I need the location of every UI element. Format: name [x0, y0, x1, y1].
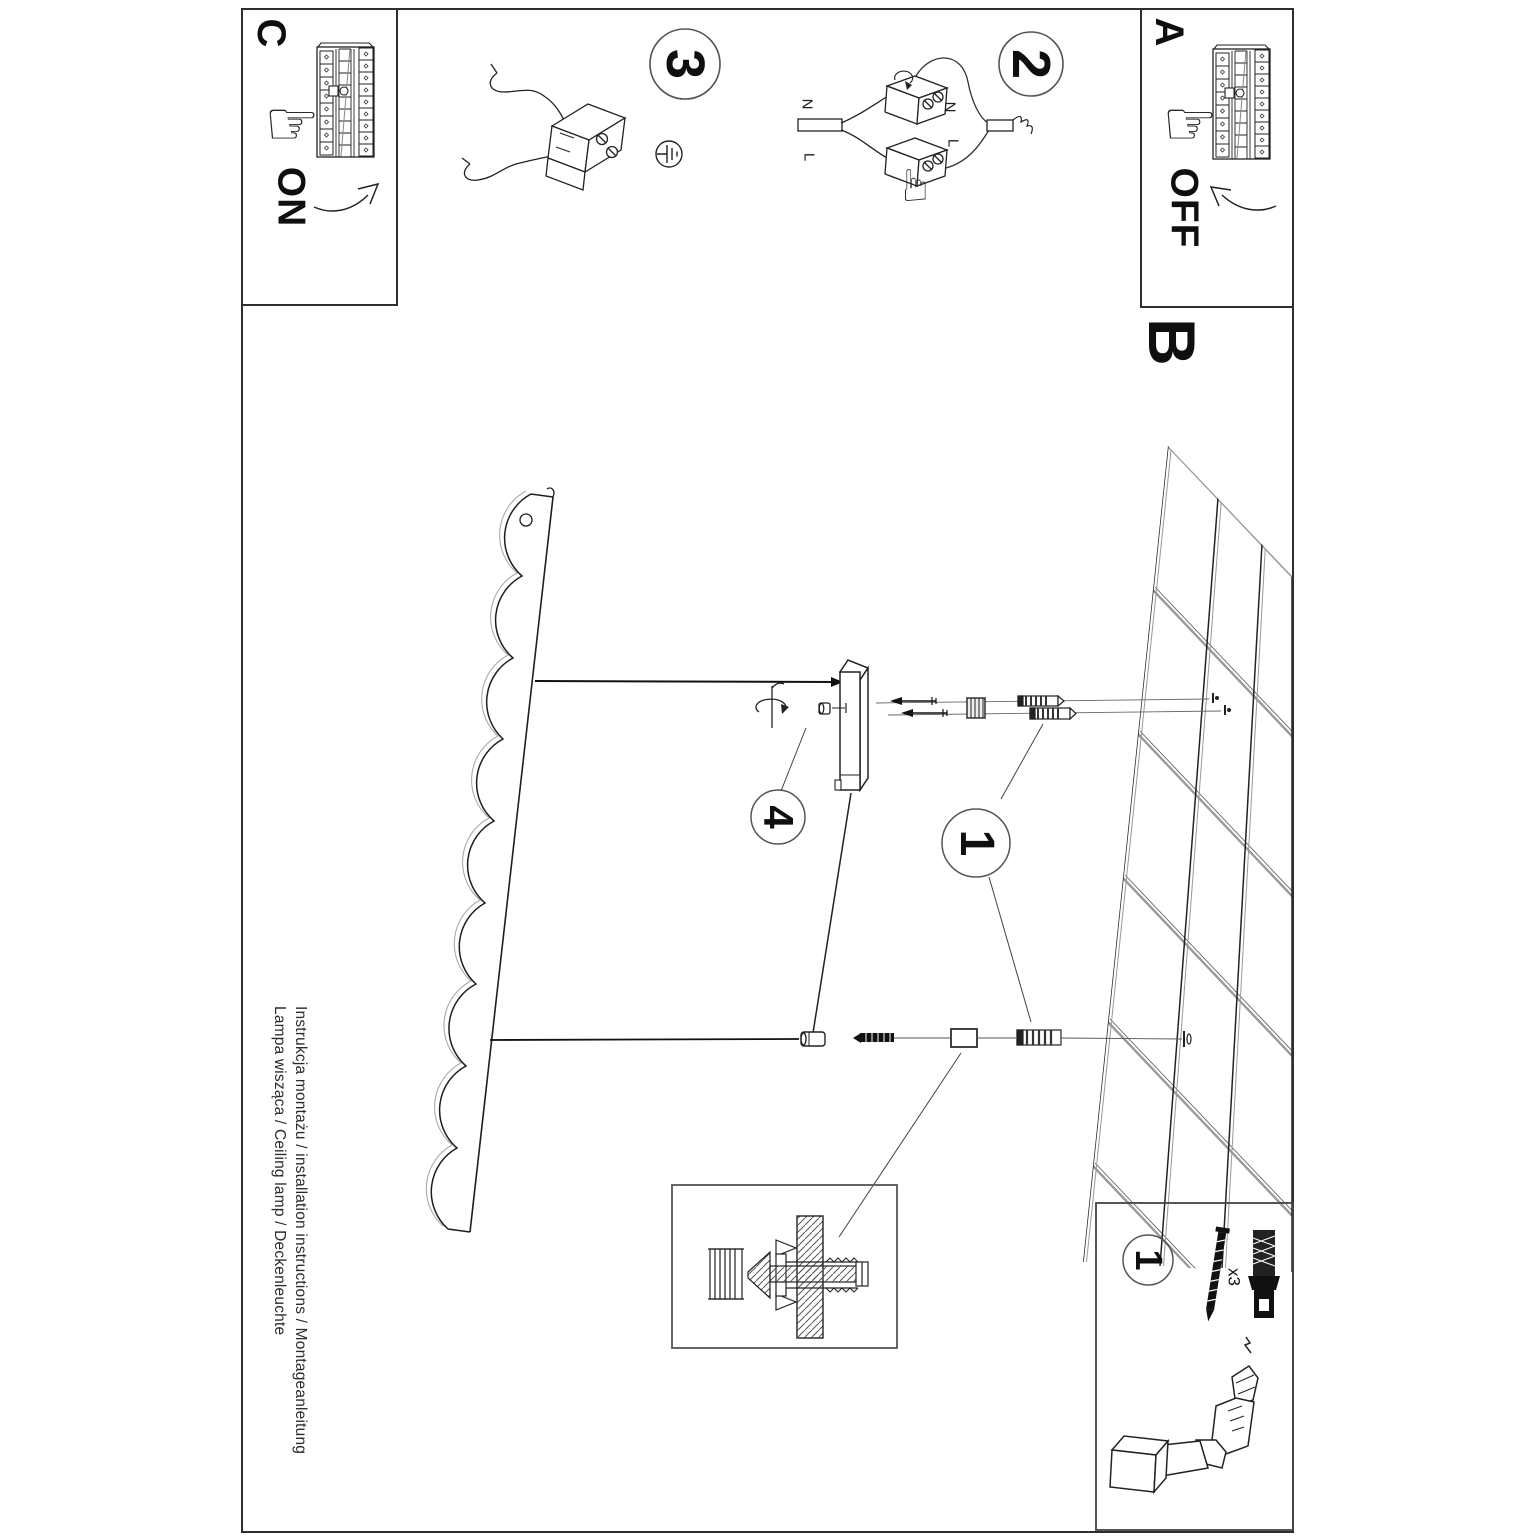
terminal-connector-step3	[462, 64, 625, 190]
on-label: ON	[272, 167, 311, 228]
footer-title-block: Instrukcja montażu / installation instru…	[269, 1006, 311, 1498]
section-label-c: C	[251, 19, 291, 48]
wire-label-n-connector: N	[943, 102, 958, 113]
pointing-hand-icon: ☞	[1162, 93, 1218, 155]
off-label: OFF	[1165, 168, 1204, 249]
step-number-1: 1	[952, 830, 1000, 857]
step-callouts	[650, 29, 1173, 1285]
on-arrow-icon	[314, 184, 378, 211]
screw-quantity-label: x3	[1226, 1268, 1243, 1286]
kit-anchor-icon	[1248, 1230, 1280, 1318]
cloud-lamp-canopy	[426, 488, 554, 1232]
suspension-cables	[490, 677, 851, 1040]
mount-bracket	[835, 660, 868, 790]
pointing-hand-icon: ☞	[264, 93, 320, 155]
exploded-screws-top	[876, 693, 1231, 719]
ground-symbol-icon	[656, 141, 682, 167]
drill-icon	[1110, 1337, 1258, 1492]
pointing-hand-up-icon: ☞	[894, 165, 938, 204]
footer-instruction-line: Instrukcja montażu / installation instru…	[290, 1006, 311, 1498]
footer-product-line: Lampa wisząca / Ceiling lamp / Deckenleu…	[269, 1006, 290, 1498]
twist-arrow-icon	[756, 683, 789, 728]
wire-label-n-supply: N	[800, 99, 815, 110]
line-art-layer	[0, 0, 1540, 1540]
breaker-panel-c	[317, 43, 374, 157]
off-arrow-icon	[1211, 187, 1276, 210]
anchor-cross-section	[708, 1216, 868, 1338]
section-label-b: B	[1139, 318, 1205, 366]
page-frames	[242, 9, 1293, 1532]
step-number-3: 3	[658, 49, 712, 79]
wire-label-l-connector: L	[946, 139, 961, 147]
wire-label-l-supply: L	[802, 153, 817, 161]
exploded-screw-bottom	[801, 1029, 1191, 1047]
breaker-panel-a	[1213, 45, 1270, 159]
step-number-4: 4	[757, 805, 799, 828]
step-number-2: 2	[1004, 49, 1058, 79]
section-label-a: A	[1149, 18, 1189, 47]
kit-number-1: 1	[1129, 1249, 1167, 1270]
instruction-sheet-page: C A B ON OFF 3 2 4 1 1 N L N L x3 ☞ ☞ ☞ …	[0, 0, 1540, 1540]
